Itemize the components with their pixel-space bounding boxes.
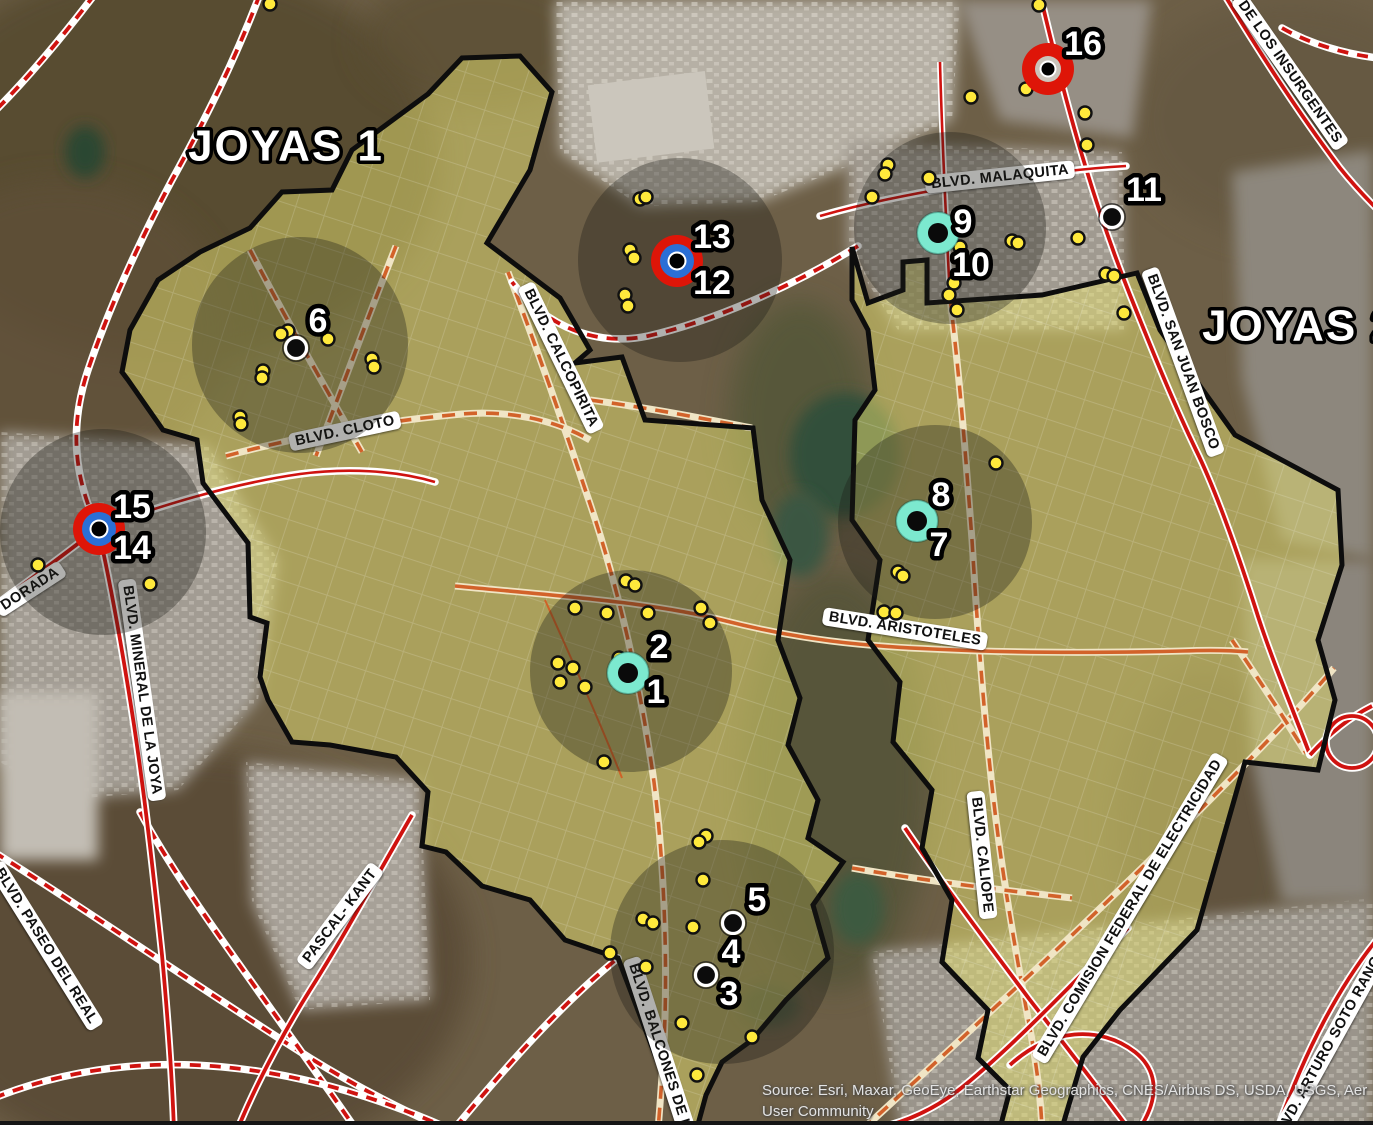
- survey-point-dot: [951, 304, 964, 317]
- survey-point-dot: [1072, 232, 1085, 245]
- survey-point-dot: [256, 372, 269, 385]
- marker-number-label: 4: [722, 933, 741, 971]
- site-marker-center: [670, 254, 685, 269]
- survey-point-dot: [598, 756, 611, 769]
- area-label: JOYAS 1: [188, 122, 384, 171]
- survey-point-dot: [693, 836, 706, 849]
- survey-point-dot: [604, 947, 617, 960]
- survey-point-dot: [923, 172, 936, 185]
- survey-point-dot: [264, 0, 277, 11]
- marker-number-label: 5: [748, 881, 767, 919]
- survey-point-dot: [676, 1017, 689, 1030]
- marker-number-label: 11: [1126, 171, 1162, 209]
- survey-point-dot: [640, 191, 653, 204]
- survey-point-dot: [647, 917, 660, 930]
- site-marker-center: [1042, 63, 1055, 76]
- survey-point-dot: [687, 921, 700, 934]
- survey-point-dot: [622, 300, 635, 313]
- marker-number-label: 2: [650, 628, 669, 666]
- attribution-line1: Source: Esri, Maxar, GeoEye, Earthstar G…: [762, 1080, 1367, 1101]
- survey-point-dot: [628, 252, 641, 265]
- survey-point-dot: [1012, 237, 1025, 250]
- survey-point-dot: [897, 570, 910, 583]
- survey-point-dot: [554, 676, 567, 689]
- marker-number-label: 12: [693, 264, 731, 302]
- marker-number-label: 6: [309, 302, 328, 340]
- survey-point-dot: [1108, 270, 1121, 283]
- site-marker-center: [92, 522, 107, 537]
- survey-point-dot: [1033, 0, 1046, 12]
- marker-number-label: 3: [720, 975, 739, 1013]
- survey-point-dot: [569, 602, 582, 615]
- map-attribution: Source: Esri, Maxar, GeoEye, Earthstar G…: [762, 1080, 1367, 1122]
- marker-number-label: 8: [932, 476, 951, 514]
- survey-point-dot: [275, 328, 288, 341]
- survey-point-dot: [691, 1069, 704, 1082]
- survey-point-dot: [579, 681, 592, 694]
- marker-number-label: 15: [113, 488, 151, 526]
- survey-point-dot: [890, 607, 903, 620]
- survey-point-dot: [695, 602, 708, 615]
- marker-number-label: 14: [113, 529, 151, 567]
- survey-point-dot: [235, 418, 248, 431]
- survey-point-dot: [965, 91, 978, 104]
- map-canvas: BLVD. MALAQUITADE LOS INSURGENTESBLVD. S…: [0, 0, 1373, 1125]
- map-overlay: 12345678910111213141516JOYAS 1JOYAS 2: [0, 0, 1373, 1125]
- survey-point-dot: [943, 289, 956, 302]
- site-marker-cyan-center: [618, 663, 638, 683]
- survey-point-dot: [879, 168, 892, 181]
- survey-point-dot: [1081, 139, 1094, 152]
- survey-point-dot: [746, 1031, 759, 1044]
- attribution-line2: User Community: [762, 1101, 1367, 1122]
- survey-point-dot: [144, 578, 157, 591]
- marker-number-label: 10: [952, 246, 990, 284]
- survey-point-dot: [866, 191, 879, 204]
- point-marker-black: [1102, 207, 1123, 228]
- marker-number-label: 13: [693, 218, 731, 256]
- survey-point-dot: [32, 559, 45, 572]
- survey-point-dot: [567, 662, 580, 675]
- point-marker-black: [696, 965, 717, 986]
- bottom-edge-strip: [0, 1121, 1373, 1125]
- survey-point-dot: [629, 579, 642, 592]
- marker-number-label: 1: [647, 673, 666, 711]
- area-label: JOYAS 2: [1202, 302, 1373, 351]
- survey-point-dot: [601, 607, 614, 620]
- survey-point-dot: [1118, 307, 1131, 320]
- survey-point-dot: [368, 361, 381, 374]
- survey-point-dot: [640, 961, 653, 974]
- marker-number-label: 16: [1064, 25, 1102, 63]
- survey-point-dot: [990, 457, 1003, 470]
- point-marker-black: [286, 338, 307, 359]
- site-marker-cyan-center: [907, 511, 927, 531]
- survey-point-dot: [1079, 107, 1092, 120]
- point-marker-black: [723, 913, 744, 934]
- marker-number-label: 7: [930, 526, 949, 564]
- site-marker-cyan-center: [928, 223, 948, 243]
- survey-point-dot: [642, 607, 655, 620]
- survey-point-dot: [552, 657, 565, 670]
- survey-point-dot: [704, 617, 717, 630]
- survey-point-dot: [697, 874, 710, 887]
- marker-number-label: 9: [954, 203, 973, 241]
